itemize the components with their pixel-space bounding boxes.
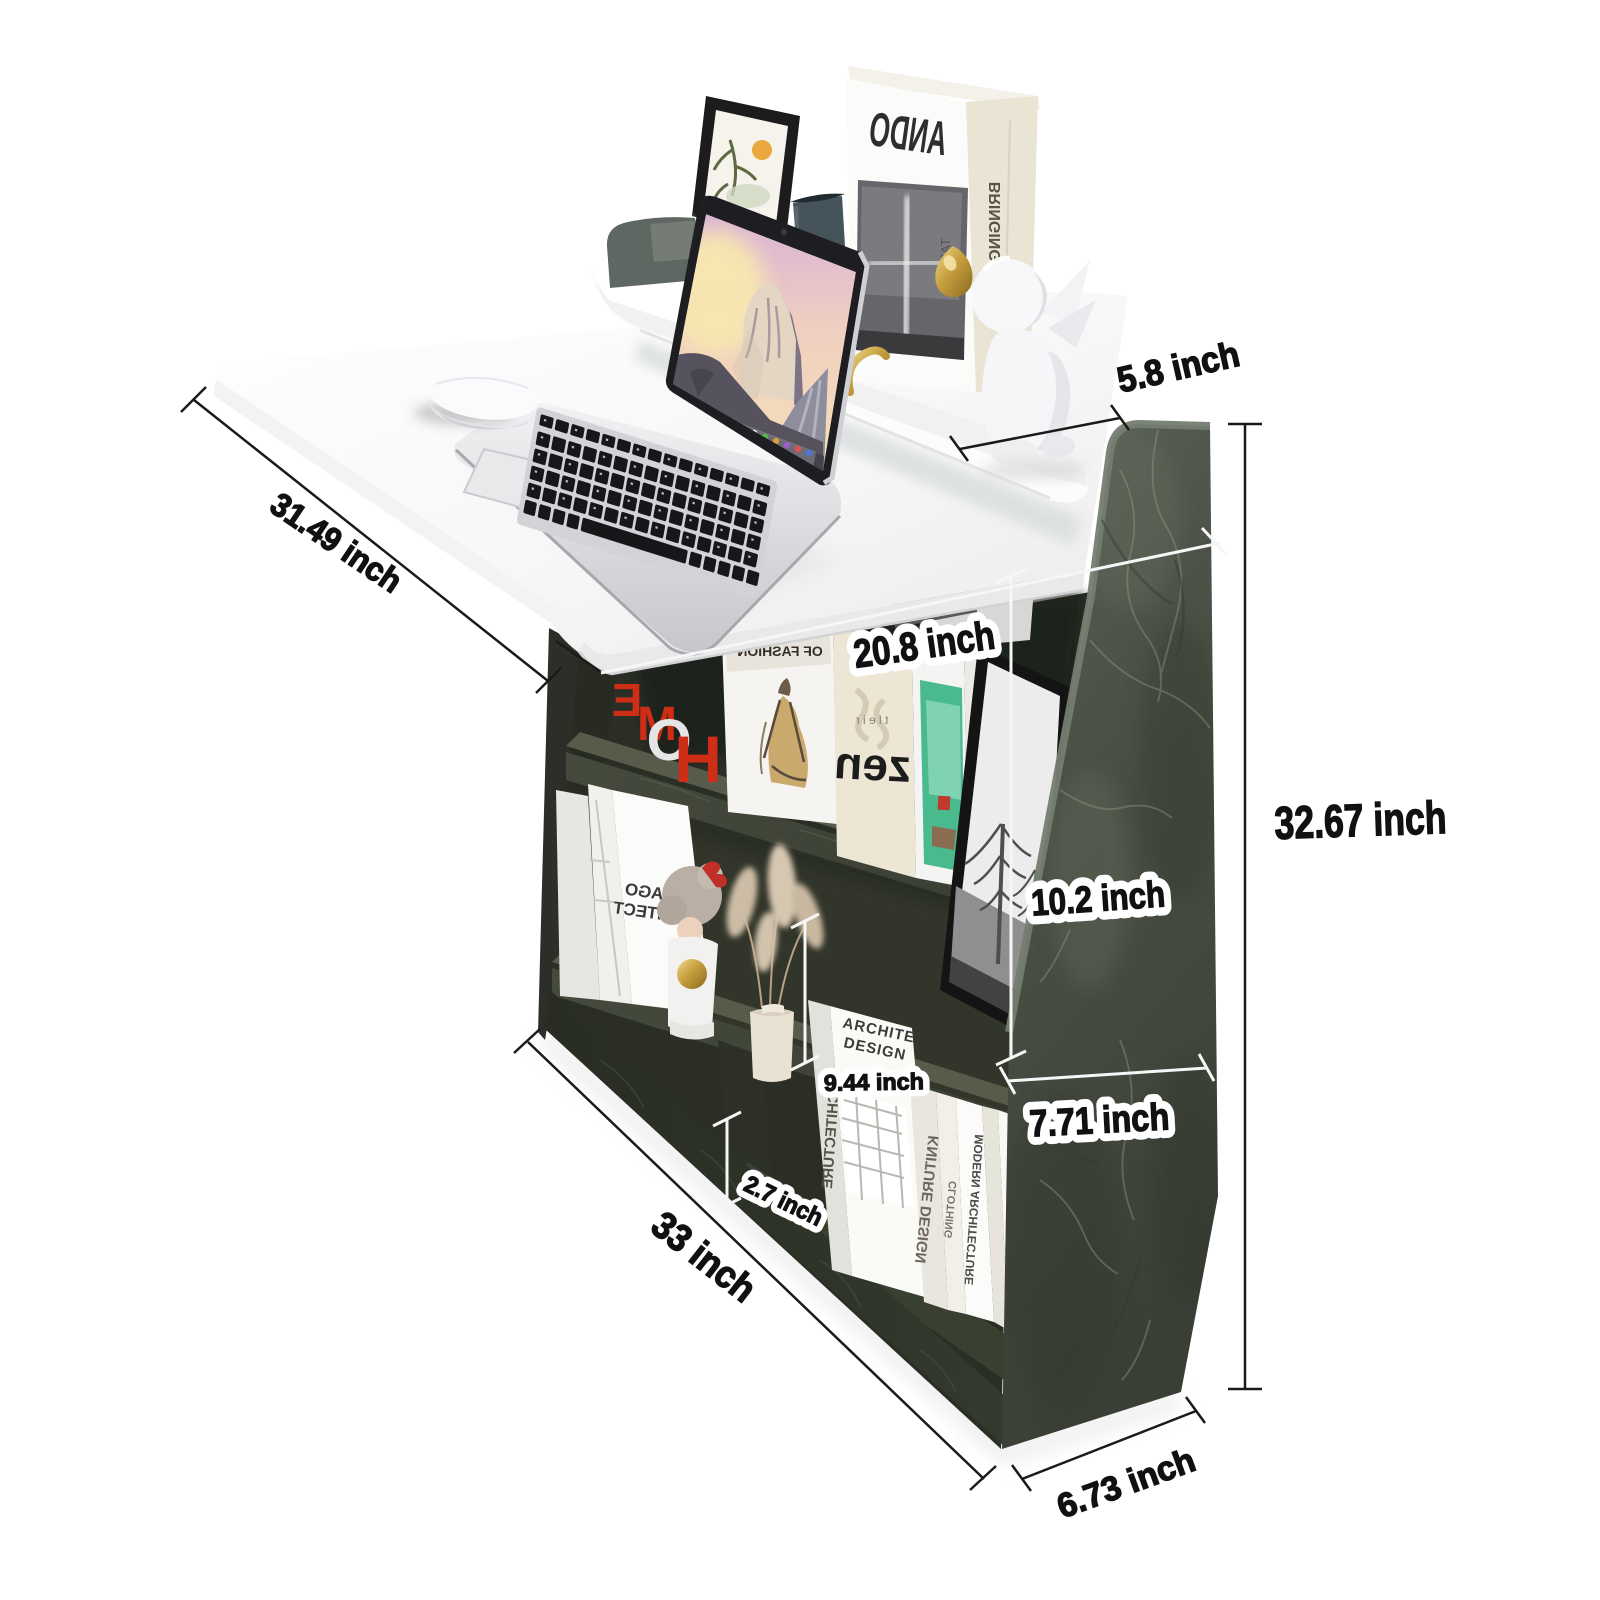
svg-text:H: H <box>674 722 722 796</box>
svg-text:zen: zen <box>833 736 912 792</box>
svg-text:9.44 inch: 9.44 inch <box>824 1068 924 1096</box>
svg-text:7.71 inch: 7.71 inch <box>1028 1096 1170 1145</box>
svg-text:32.67 inch: 32.67 inch <box>1274 791 1448 849</box>
svg-text:t l e i r: t l e i r <box>856 713 889 727</box>
svg-text:ANDO: ANDO <box>866 103 951 166</box>
